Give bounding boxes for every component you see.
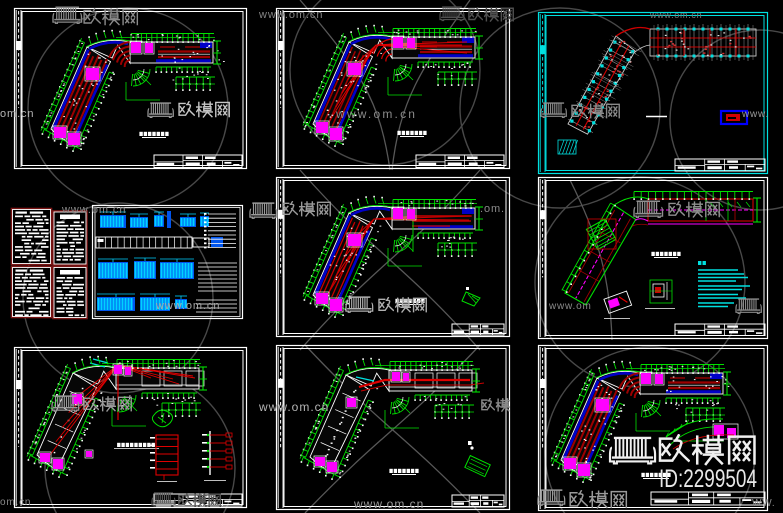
svg-text:www.om: www.om <box>548 301 592 312</box>
svg-text:www.om.cn: www.om.cn <box>61 204 126 216</box>
svg-text:www.om.cn: www.om.cn <box>353 497 424 511</box>
svg-text:www.om.cn: www.om.cn <box>155 300 220 312</box>
svg-text:ID:2299504: ID:2299504 <box>659 465 757 493</box>
svg-text:www.om.cn: www.om.cn <box>335 107 417 121</box>
svg-text:om.cn: om.cn <box>0 497 31 508</box>
svg-text:www.: www. <box>741 109 769 120</box>
svg-text:www.om.cn: www.om.cn <box>649 10 702 20</box>
svg-text:WW.: WW. <box>752 498 776 509</box>
svg-text:www.om.cn: www.om.cn <box>258 400 329 414</box>
svg-text:www.om.cn: www.om.cn <box>258 9 323 21</box>
svg-text:om.cn: om.cn <box>0 108 34 120</box>
svg-text:.om.: .om. <box>480 203 505 215</box>
